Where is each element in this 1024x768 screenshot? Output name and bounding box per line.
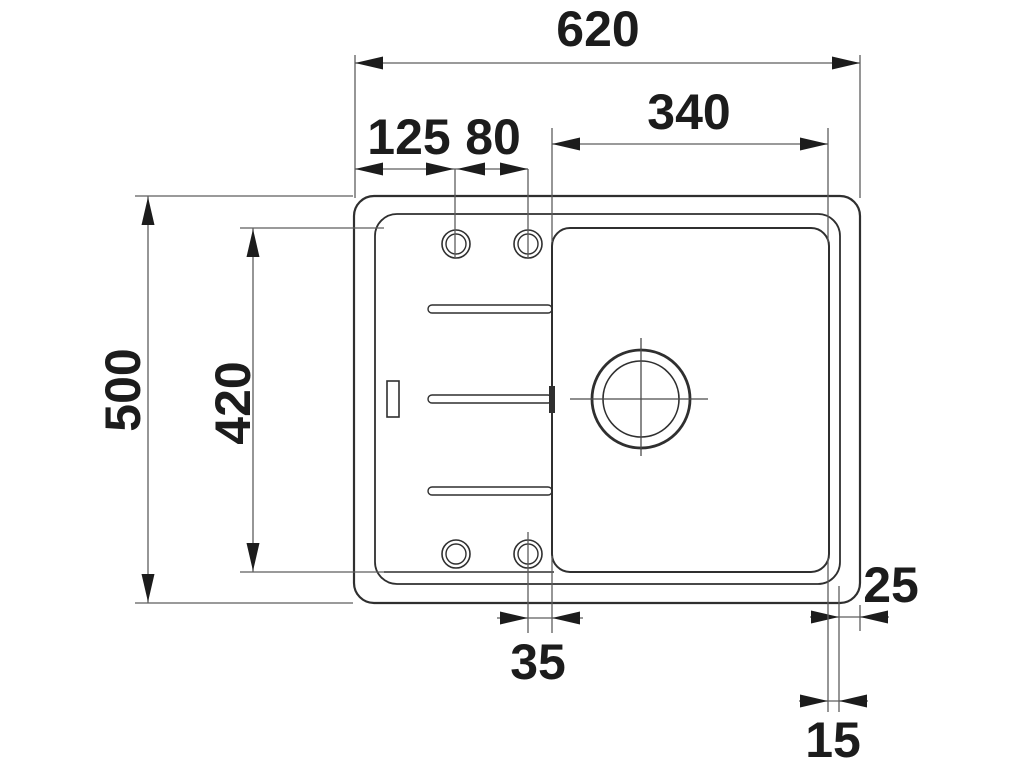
dimension-label-620: 620 <box>556 1 639 57</box>
arrowhead-right <box>832 57 860 70</box>
dimension-label-15: 15 <box>805 712 861 768</box>
dimension-label-125: 125 <box>367 109 450 165</box>
arrowhead-left <box>355 57 383 70</box>
dimension-label-35: 35 <box>510 634 566 690</box>
tap-holes <box>442 230 542 568</box>
drainboard-groove <box>428 487 552 495</box>
sink-dimension-diagram: 620 340 125 80 <box>0 0 1024 768</box>
dimension-label-500: 500 <box>95 348 151 431</box>
dimension-bowl-width: 340 <box>552 84 828 242</box>
tap-hole-bottom-left-inner <box>446 544 466 564</box>
arrowhead-up <box>142 197 155 225</box>
arrowhead-right <box>500 612 528 625</box>
dimension-label-25: 25 <box>863 557 919 613</box>
arrowhead-down <box>142 574 155 602</box>
dimension-rim-to-edge: 25 <box>810 557 919 712</box>
tap-hole-top-left-inner <box>446 234 466 254</box>
dimension-label-420: 420 <box>205 361 261 444</box>
drainboard-grooves <box>387 305 555 495</box>
arrowhead-left <box>552 612 580 625</box>
dimension-label-80: 80 <box>465 109 521 165</box>
arrowhead-right <box>800 695 828 708</box>
arrowhead-right <box>800 138 828 151</box>
dimension-label-340: 340 <box>647 84 730 140</box>
sink-technical-drawing-canvas: 620 340 125 80 <box>0 0 1024 768</box>
arrowhead-left <box>839 695 867 708</box>
arrowhead-up <box>247 229 260 257</box>
arrowhead-down <box>247 543 260 571</box>
drain <box>570 338 708 456</box>
overflow-slot <box>387 381 399 417</box>
arrowhead-right <box>811 611 839 624</box>
dimension-bowl-depth: 420 <box>205 228 384 572</box>
dimension-hole-to-bowl: 35 <box>497 532 583 690</box>
dimension-bowl-to-rim: 15 <box>799 558 868 768</box>
groove-end-tick <box>549 386 555 413</box>
arrowhead-left <box>552 138 580 151</box>
drainboard-groove <box>428 395 552 403</box>
drainboard-groove <box>428 305 552 313</box>
dimension-tap-holes-top: 125 80 <box>355 109 528 259</box>
